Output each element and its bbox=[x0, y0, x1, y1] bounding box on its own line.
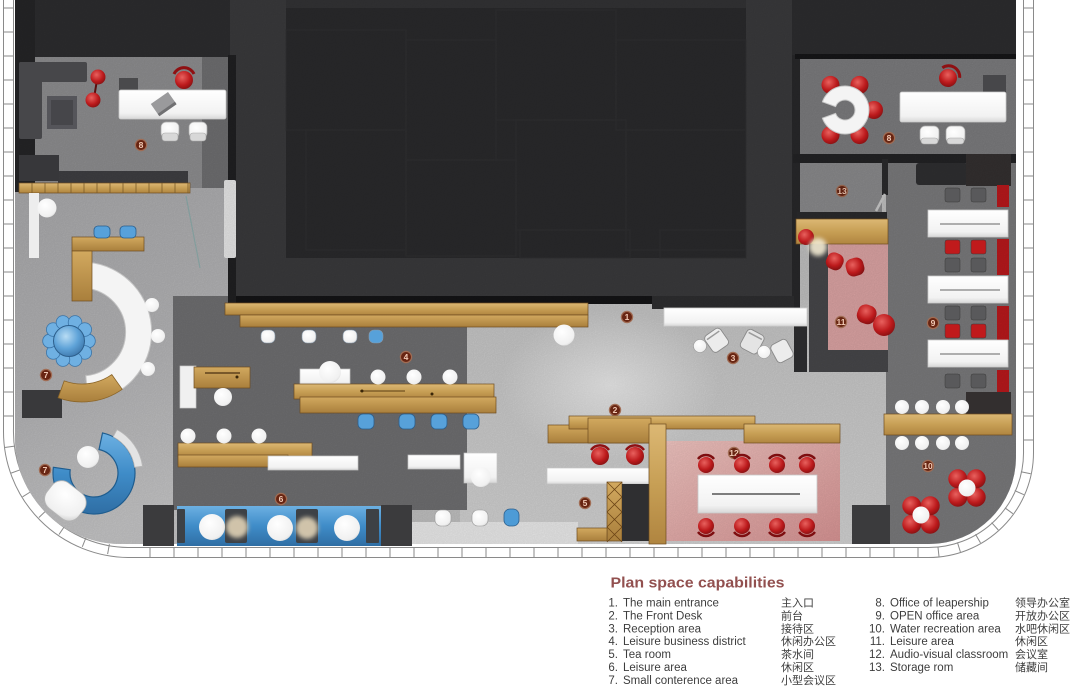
svg-text:7: 7 bbox=[44, 370, 49, 380]
svg-text:2.: 2. bbox=[608, 610, 618, 622]
svg-text:The Front Desk: The Front Desk bbox=[623, 610, 702, 622]
svg-text:Office of leapership: Office of leapership bbox=[890, 598, 989, 610]
svg-text:13.: 13. bbox=[869, 662, 885, 674]
svg-text:主入口: 主入口 bbox=[781, 597, 814, 610]
svg-text:6.: 6. bbox=[608, 662, 618, 674]
svg-text:Small conterence area: Small conterence area bbox=[623, 675, 739, 687]
svg-text:12.: 12. bbox=[869, 649, 885, 661]
svg-text:3.: 3. bbox=[608, 623, 618, 635]
svg-text:8: 8 bbox=[139, 140, 144, 150]
svg-text:5: 5 bbox=[583, 498, 588, 508]
svg-text:9.: 9. bbox=[875, 610, 885, 622]
svg-text:10.: 10. bbox=[869, 623, 885, 635]
svg-text:Leisure area: Leisure area bbox=[890, 636, 955, 648]
svg-text:休闲区: 休闲区 bbox=[1015, 634, 1048, 648]
svg-text:水吧休闲区: 水吧休闲区 bbox=[1015, 621, 1070, 635]
svg-text:11.: 11. bbox=[870, 636, 885, 648]
svg-text:Storage rom: Storage rom bbox=[890, 662, 953, 674]
svg-text:8: 8 bbox=[887, 133, 892, 143]
svg-text:休闲办公区: 休闲办公区 bbox=[781, 634, 836, 648]
svg-text:7.: 7. bbox=[608, 675, 618, 687]
svg-text:5.: 5. bbox=[608, 649, 618, 661]
svg-text:11: 11 bbox=[837, 317, 846, 327]
svg-text:Leisure business district: Leisure business district bbox=[623, 636, 747, 648]
svg-text:3: 3 bbox=[731, 353, 736, 363]
svg-text:领导办公室: 领导办公室 bbox=[1015, 596, 1070, 610]
svg-text:会议室: 会议室 bbox=[1015, 647, 1048, 661]
svg-text:2: 2 bbox=[613, 405, 618, 415]
svg-text:1: 1 bbox=[625, 312, 630, 322]
svg-text:Leisure area: Leisure area bbox=[623, 662, 688, 674]
svg-text:Reception area: Reception area bbox=[623, 623, 702, 635]
svg-text:4: 4 bbox=[404, 352, 409, 362]
svg-text:Tea room: Tea room bbox=[623, 649, 671, 661]
svg-text:The main entrance: The main entrance bbox=[623, 598, 719, 610]
svg-text:OPEN office area: OPEN office area bbox=[890, 610, 980, 622]
svg-text:7: 7 bbox=[43, 465, 48, 475]
svg-text:储藏间: 储藏间 bbox=[1015, 660, 1048, 674]
svg-text:Water recreation area: Water recreation area bbox=[890, 623, 1001, 635]
svg-text:前台: 前台 bbox=[781, 608, 803, 622]
svg-text:休闲区: 休闲区 bbox=[781, 660, 814, 674]
svg-text:小型会议区: 小型会议区 bbox=[781, 673, 836, 687]
svg-text:Plan space capabilities: Plan space capabilities bbox=[611, 575, 785, 592]
svg-text:10: 10 bbox=[923, 461, 933, 471]
svg-text:开放办公区: 开放办公区 bbox=[1015, 608, 1070, 622]
svg-text:8.: 8. bbox=[875, 598, 885, 610]
svg-text:Audio-visual classroom: Audio-visual classroom bbox=[890, 649, 1008, 661]
svg-text:接待区: 接待区 bbox=[781, 621, 814, 635]
svg-text:茶水间: 茶水间 bbox=[781, 648, 814, 661]
svg-text:9: 9 bbox=[931, 318, 936, 328]
svg-text:4.: 4. bbox=[608, 636, 618, 648]
svg-text:6: 6 bbox=[279, 494, 284, 504]
svg-text:1.: 1. bbox=[608, 598, 618, 610]
